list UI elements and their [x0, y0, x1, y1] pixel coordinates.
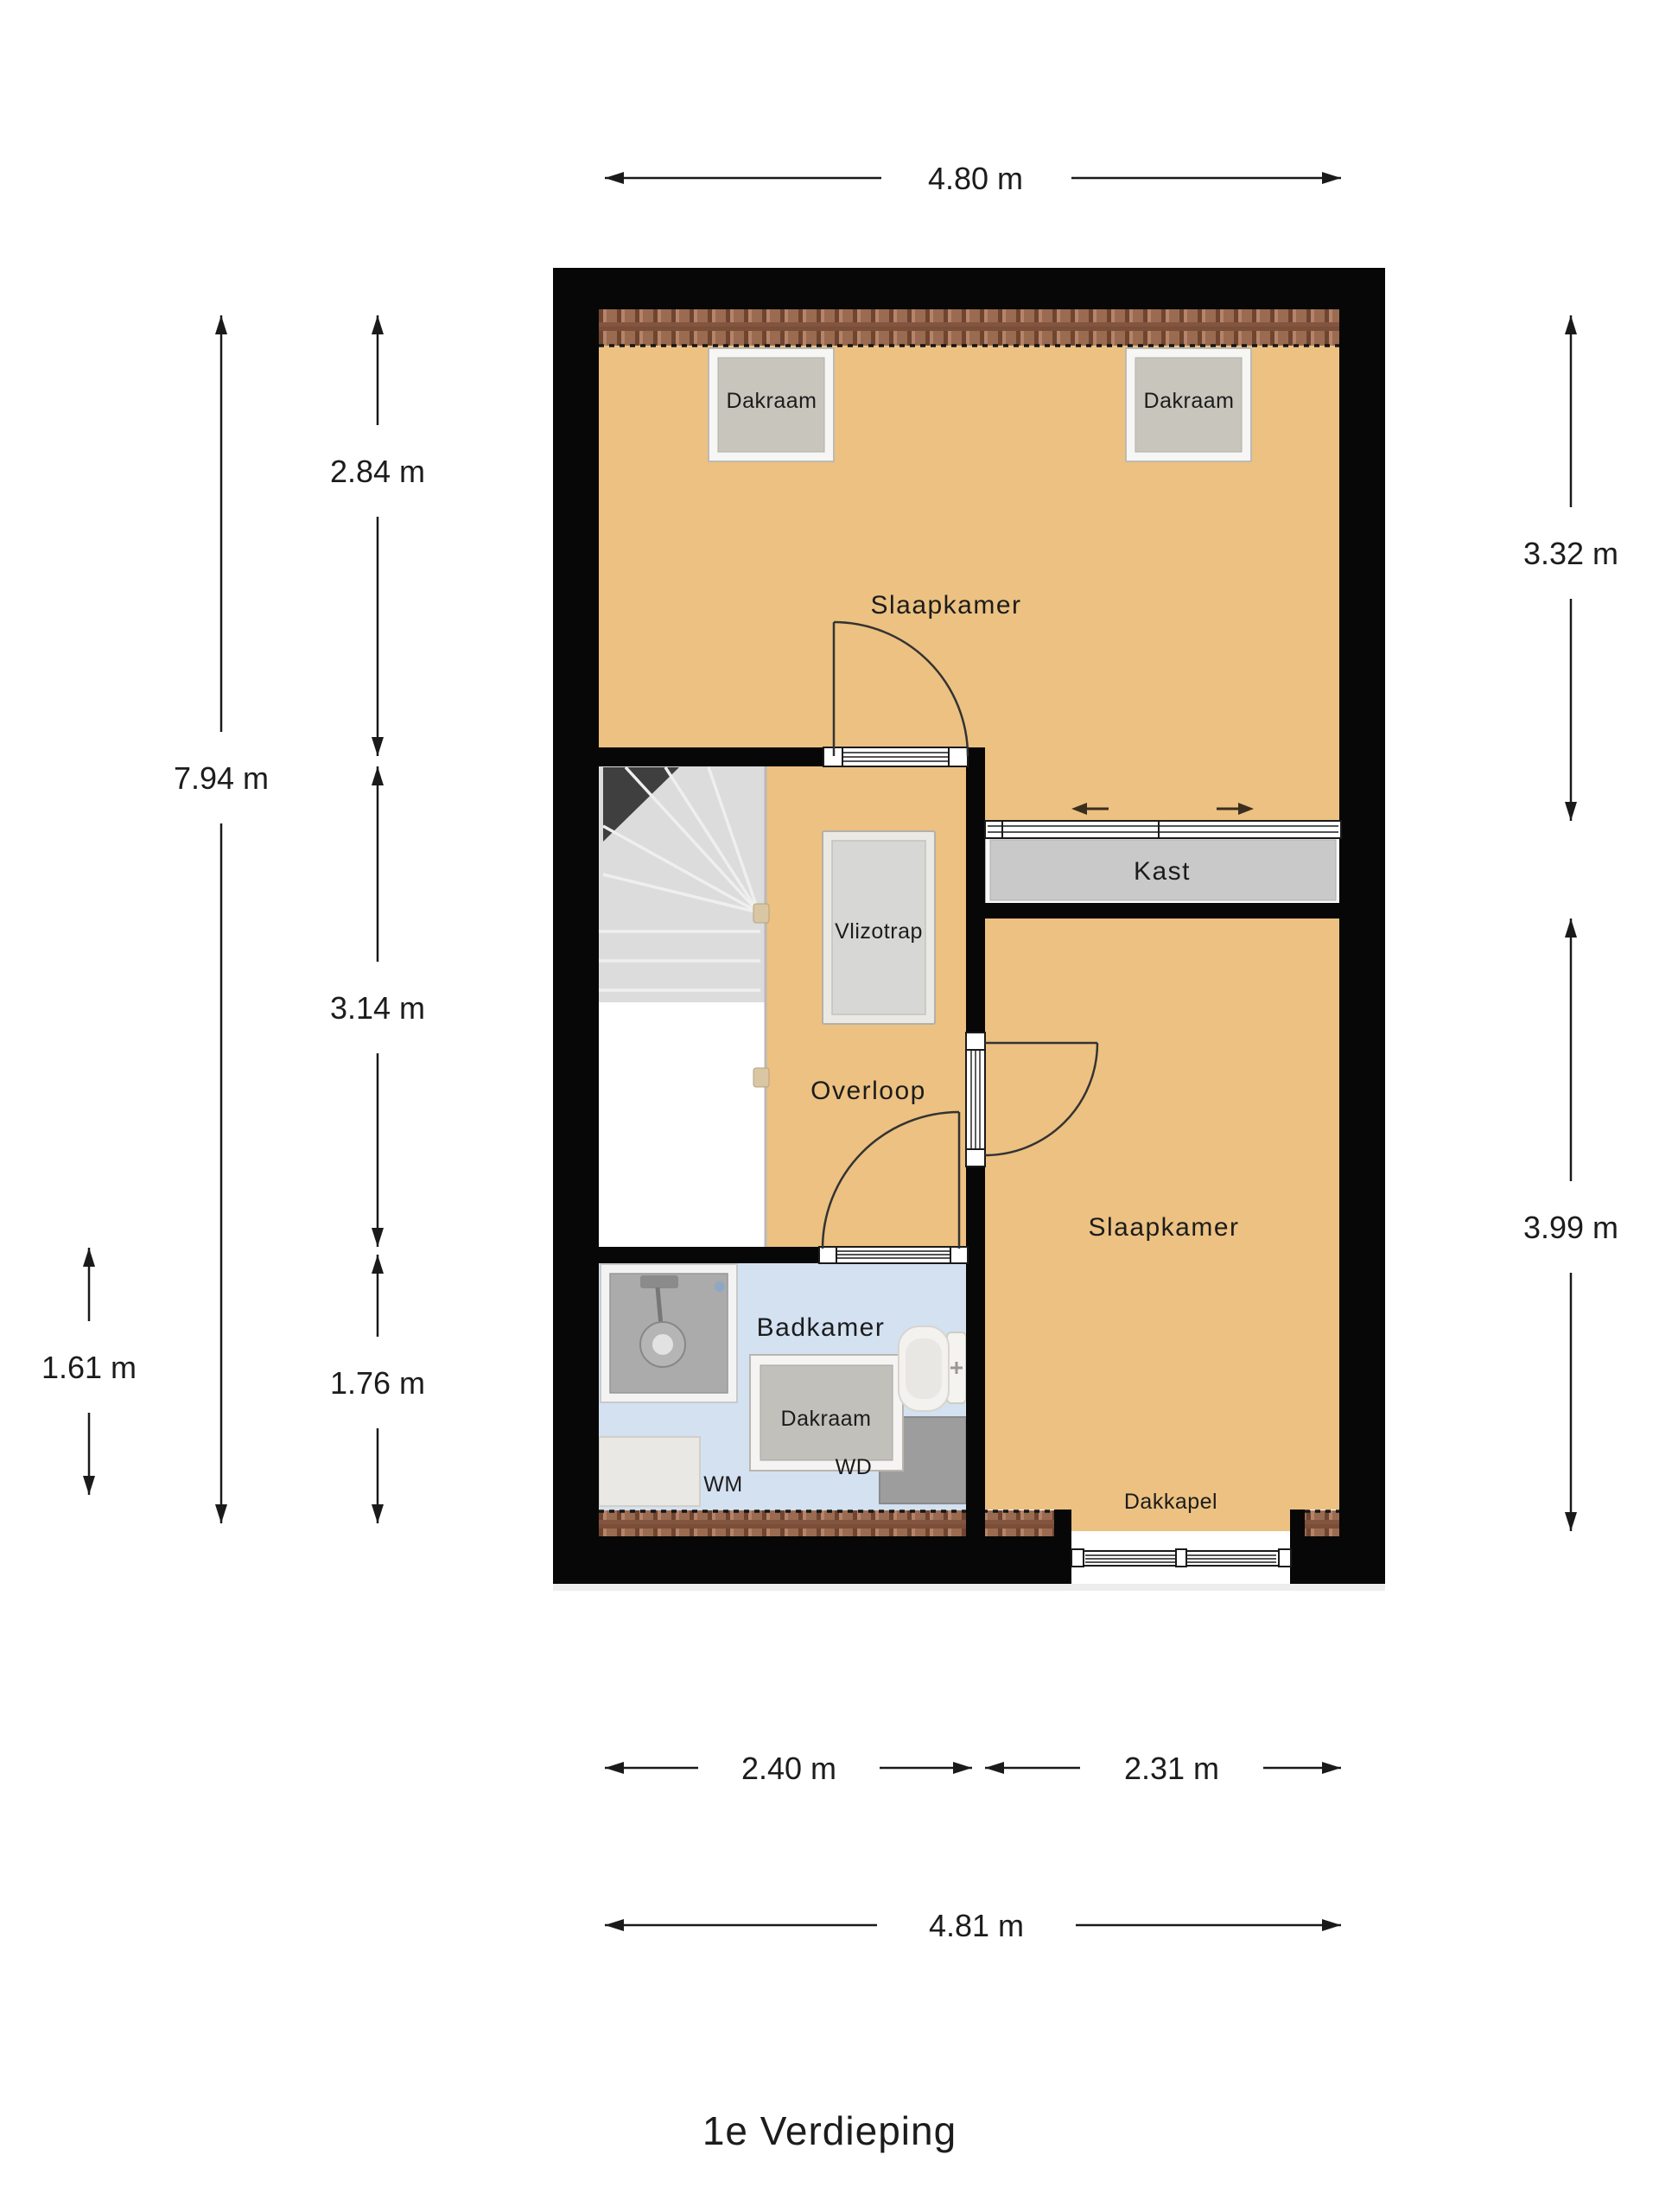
svg-text:1.61 m: 1.61 m	[41, 1350, 137, 1385]
shower	[601, 1264, 737, 1402]
svg-text:7.94 m: 7.94 m	[174, 760, 269, 796]
dimension-bottom-total: 4.81 m	[605, 1908, 1341, 1943]
wall-bottom-right	[1305, 1536, 1385, 1584]
washing-machine	[599, 1437, 700, 1506]
svg-text:4.80 m: 4.80 m	[928, 161, 1023, 196]
loft-ladder-hatch: Vlizotrap	[823, 831, 935, 1024]
dimension-left-total: 7.94 m	[174, 315, 269, 1523]
wall-left	[553, 268, 599, 1584]
dormer-window	[1071, 1531, 1291, 1584]
floorplan-page: Kast Vlizotrap Dakraam Dakraam Dakraam	[0, 0, 1659, 2212]
closet: Kast	[985, 835, 1341, 906]
wall-dormer-right	[1290, 1510, 1305, 1584]
landing-label: Overloop	[810, 1077, 926, 1105]
roof-window-label: Dakraam	[727, 389, 817, 413]
dormer-label: Dakkapel	[1124, 1490, 1217, 1514]
svg-text:1.76 m: 1.76 m	[330, 1365, 425, 1401]
svg-text:2.40 m: 2.40 m	[741, 1751, 836, 1786]
shower-drain	[715, 1281, 725, 1292]
dimension-right-bottom: 3.99 m	[1523, 918, 1618, 1531]
closet-label: Kast	[1134, 857, 1191, 886]
dimension-left-top: 2.84 m	[330, 315, 425, 756]
dimension-bottom-right: 2.31 m	[985, 1751, 1341, 1786]
loft-ladder-label: Vlizotrap	[835, 919, 923, 944]
stair-void	[599, 1002, 766, 1247]
stair-newel-post	[753, 904, 769, 923]
wall-closet-bedroom	[969, 903, 1341, 918]
svg-text:2.31 m: 2.31 m	[1124, 1751, 1219, 1786]
dimension-left-middle: 3.14 m	[330, 766, 425, 1247]
wall-dormer-left	[1054, 1510, 1071, 1584]
roof-strip-top	[599, 309, 1341, 346]
floorplan-drawing: Kast Vlizotrap Dakraam Dakraam Dakraam	[0, 0, 1659, 2212]
svg-text:3.99 m: 3.99 m	[1523, 1210, 1618, 1245]
svg-text:4.81 m: 4.81 m	[929, 1908, 1024, 1943]
washing-machine-label: WM	[703, 1472, 742, 1497]
svg-text:2.84 m: 2.84 m	[330, 454, 425, 489]
bedroom-top-floor-right	[985, 747, 1341, 823]
roof-window-bathroom: Dakraam	[750, 1355, 903, 1471]
bedroom-top-label: Slaapkamer	[870, 591, 1021, 620]
bedroom-right-label: Slaapkamer	[1088, 1213, 1239, 1242]
shower-mixer	[640, 1275, 678, 1288]
wall-landing-right-lower	[966, 1166, 985, 1536]
plan-shadow	[553, 1584, 1385, 1591]
bathroom-label: Badkamer	[757, 1313, 886, 1342]
roof-strip-bottom-right	[1305, 1510, 1339, 1536]
dimension-top-width: 4.80 m	[605, 161, 1341, 196]
dimension-bottom-left: 2.40 m	[605, 1751, 972, 1786]
page-title: 1e Verdieping	[702, 2108, 957, 2153]
wall-landing-right-upper	[966, 747, 985, 1033]
wall-bedroom-landing	[599, 747, 823, 766]
dimension-left-bottom: 1.76 m	[330, 1255, 425, 1523]
wall-right	[1339, 268, 1385, 1584]
stair-newel-post-2	[753, 1068, 769, 1087]
svg-text:3.32 m: 3.32 m	[1523, 536, 1618, 571]
roof-window-label: Dakraam	[1144, 389, 1235, 413]
toilet	[899, 1326, 966, 1411]
dryer-label: WD	[836, 1455, 873, 1479]
roof-window-top-left: Dakraam	[709, 348, 834, 461]
roof-window-top-right: Dakraam	[1126, 348, 1251, 461]
dimension-right-top: 3.32 m	[1523, 315, 1618, 821]
roof-strip-bottom	[599, 1510, 1054, 1536]
wall-bathroom-top	[599, 1247, 819, 1263]
roof-window-label: Dakraam	[781, 1407, 872, 1431]
wall-bottom-left	[553, 1536, 1071, 1584]
svg-text:3.14 m: 3.14 m	[330, 990, 425, 1026]
dimension-outer-left: 1.61 m	[41, 1248, 137, 1495]
wall-top	[553, 268, 1385, 309]
